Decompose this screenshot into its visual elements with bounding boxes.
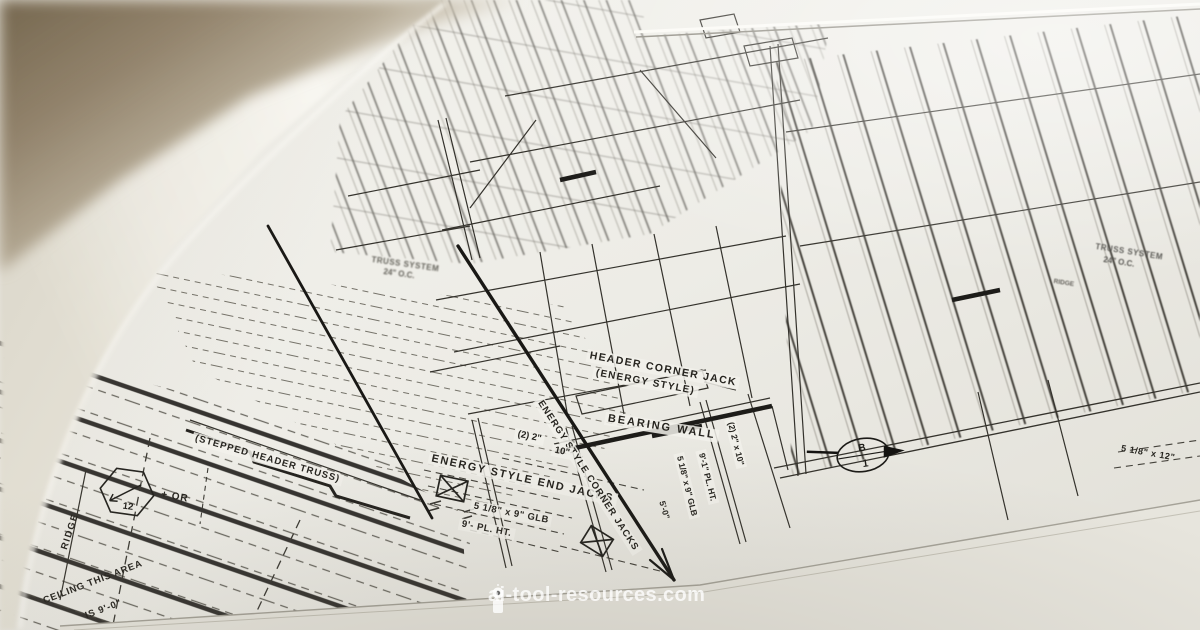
- blueprint-photo: B 1 12 HEADER CORNER JACK (ENERGY STYLE)…: [0, 0, 1200, 630]
- watermark-text: ai-tool-resources.com: [488, 584, 705, 607]
- watermark: ai-tool-resources.com: [488, 584, 705, 607]
- blueprint-linework: B 1 12: [0, 0, 1200, 630]
- pitch-value: 12: [122, 501, 134, 513]
